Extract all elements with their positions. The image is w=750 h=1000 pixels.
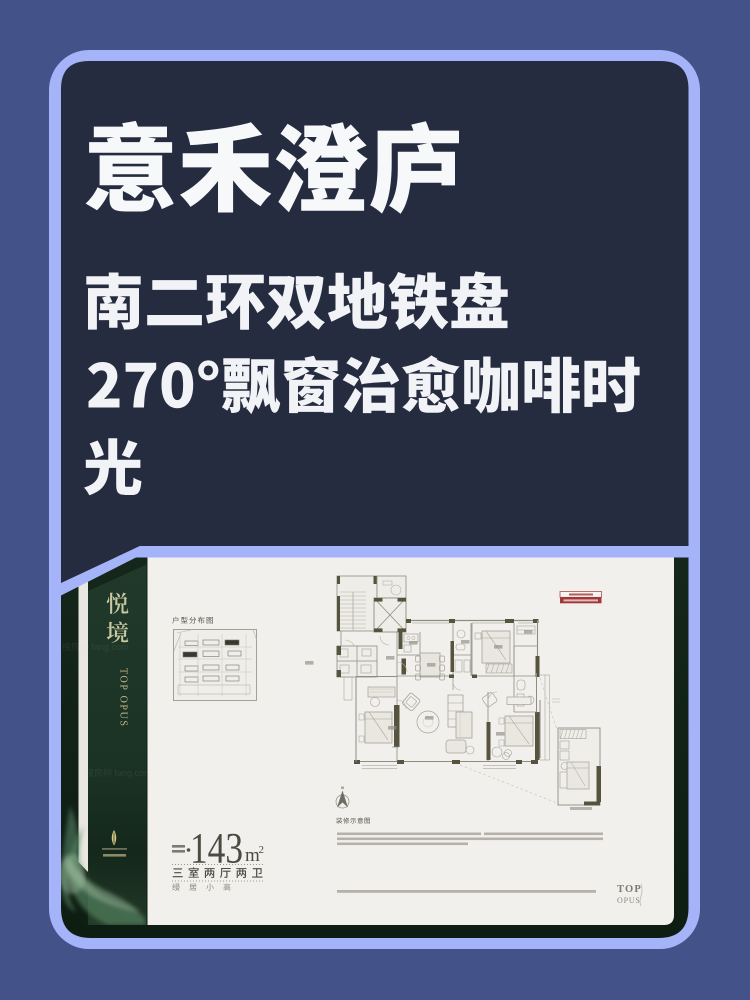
svg-text:TOP: TOP	[617, 884, 642, 895]
svg-text:2: 2	[259, 844, 265, 856]
svg-text:搜房网 fang.com: 搜房网 fang.com	[85, 767, 152, 778]
svg-text:143: 143	[190, 826, 243, 873]
svg-text:OPUS: OPUS	[617, 896, 641, 905]
svg-text:搜房网 fang.com: 搜房网 fang.com	[62, 641, 129, 652]
svg-text:TOP OPUS: TOP OPUS	[118, 668, 129, 728]
